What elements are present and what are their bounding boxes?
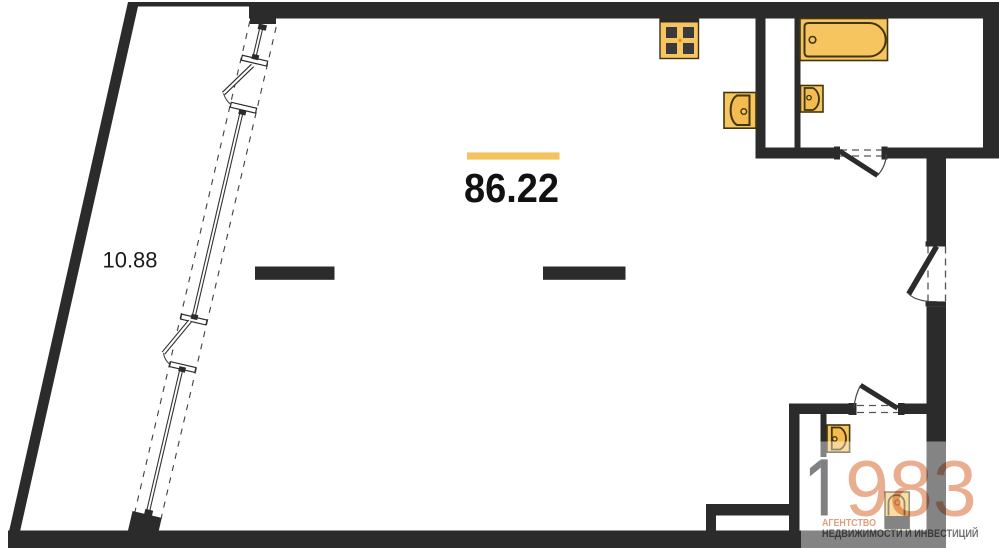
svg-text:10.88: 10.88 [103,248,158,273]
svg-text:86.22: 86.22 [464,165,559,211]
svg-text:НЕДВИЖИМОСТИ И ИНВЕСТИЦИЙ: НЕДВИЖИМОСТИ И ИНВЕСТИЦИЙ [822,527,979,540]
